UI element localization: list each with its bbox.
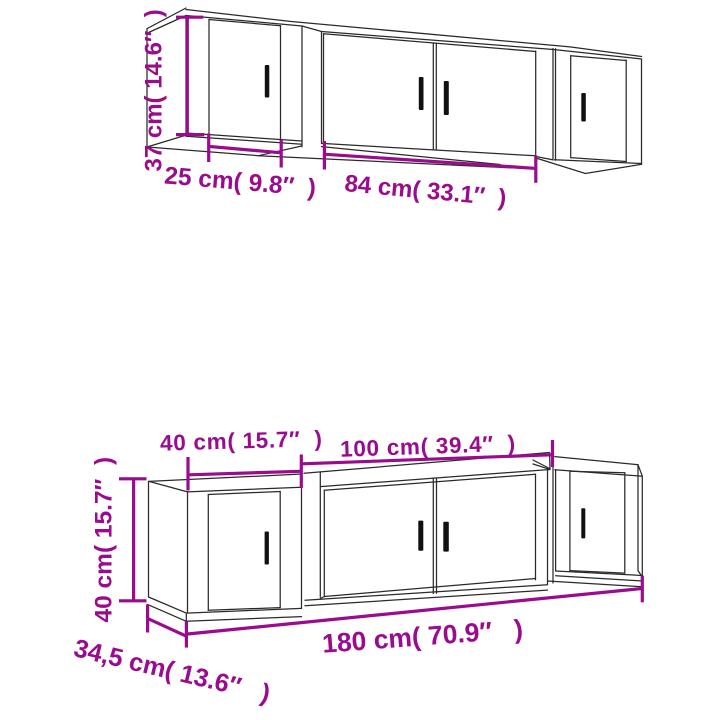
svg-text:84 cm( 33.1″ ): 84 cm( 33.1″ ) — [343, 170, 507, 212]
svg-text:37 cm( 14.6″ ): 37 cm( 14.6″ ) — [141, 9, 168, 171]
svg-text:34,5 cm( 13.6″ ): 34,5 cm( 13.6″ ) — [71, 634, 273, 708]
svg-text:40 cm( 15.7″ ): 40 cm( 15.7″ ) — [160, 426, 323, 456]
svg-text:180 cm( 70.9″ ): 180 cm( 70.9″ ) — [321, 614, 524, 659]
svg-text:40 cm( 15.7″ ): 40 cm( 15.7″ ) — [91, 457, 118, 623]
svg-text:25 cm( 9.8″ ): 25 cm( 9.8″ ) — [163, 162, 317, 202]
